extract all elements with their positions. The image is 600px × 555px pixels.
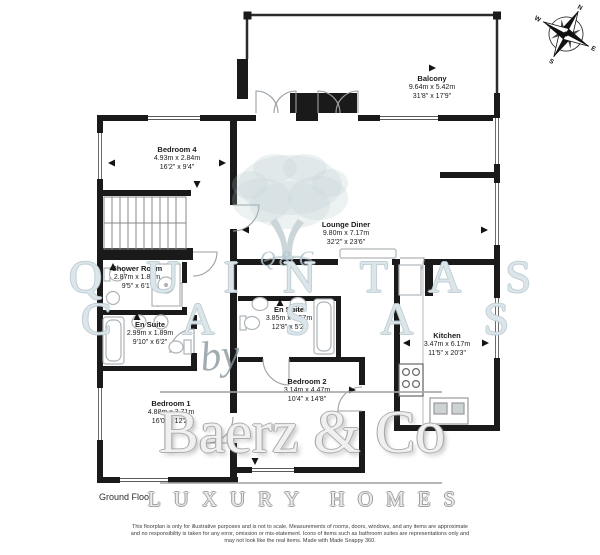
room-name: Lounge Diner: [322, 220, 370, 229]
room-dim-metric: 9.64m x 5.42m: [409, 83, 455, 92]
room-label-shower-room: Shower Room 2.87m x 1.86m 9'5" x 6'1": [112, 264, 162, 291]
compass-rose-icon: N E S W: [519, 0, 600, 81]
room-label-bedroom-4: Bedroom 4 4.93m x 2.84m 16'2" x 9'4": [154, 145, 200, 172]
compass-n-label: N: [576, 4, 584, 13]
room-name: Kitchen: [424, 331, 470, 340]
fridge-icon: [399, 265, 421, 295]
disclaimer-text: This floorplan is only for illustrative …: [0, 524, 600, 545]
room-dim-imperial: 10'4" x 14'8": [284, 395, 330, 404]
room-dim-imperial: 12'8" x 5'2": [266, 323, 312, 332]
room-dim-imperial: 32'2" x 23'6": [322, 238, 370, 247]
room-label-lounge-diner: Lounge Diner 9.80m x 7.17m 32'2" x 23'6": [322, 220, 370, 247]
room-label-kitchen: Kitchen 3.47m x 6.17m 11'5" x 20'3": [424, 331, 470, 358]
sink-icon: [107, 292, 120, 305]
room-name: Bedroom 1: [148, 399, 194, 408]
compass-w-label: W: [533, 15, 542, 24]
room-dim-metric: 2.87m x 1.86m: [112, 273, 162, 282]
room-dim-metric: 3.47m x 6.17m: [424, 340, 470, 349]
room-dim-imperial: 9'5" x 6'1": [112, 282, 162, 291]
room-label-en-suite-2: En Suite 3.85m x 1.57m 12'8" x 5'2": [266, 305, 312, 332]
disclaimer-line-3: may not look like the real items. Made w…: [0, 538, 600, 545]
room-label-balcony: Balcony 9.64m x 5.42m 31'8" x 17'9": [409, 74, 455, 101]
compass-s-label: S: [548, 58, 556, 67]
room-label-bedroom-1: Bedroom 1 4.88m x 3.71m 16'0" x 12'2": [148, 399, 194, 426]
balcony-railing: [244, 12, 502, 94]
floorplan-page: N E S W Balcony 9.64m x 5.42m 31'8" x 17…: [0, 0, 600, 555]
room-name: Bedroom 2: [284, 377, 330, 386]
room-dim-metric: 4.88m x 3.71m: [148, 408, 194, 417]
kitchen-sink-icon: [430, 398, 468, 424]
room-dim-metric: 2.99m x 1.89m: [127, 329, 173, 338]
sideboard-icon: [340, 249, 396, 258]
bathtub-icon: [314, 299, 334, 354]
room-dim-metric: 4.93m x 2.84m: [154, 154, 200, 163]
room-name: Shower Room: [112, 264, 162, 273]
room-dim-metric: 9.80m x 7.17m: [322, 229, 370, 238]
room-dim-imperial: 31'8" x 17'9": [409, 92, 455, 101]
disclaimer-line-2: and no responsibility is taken for any e…: [0, 531, 600, 538]
room-name: Bedroom 4: [154, 145, 200, 154]
room-name: En Suite: [127, 320, 173, 329]
room-label-en-suite-1: En Suite 2.99m x 1.89m 9'10" x 6'2": [127, 320, 173, 347]
room-dim-imperial: 11'5" x 20'3": [424, 349, 470, 358]
room-dim-imperial: 9'10" x 6'2": [127, 338, 173, 347]
room-name: En Suite: [266, 305, 312, 314]
room-dim-imperial: 16'2" x 9'4": [154, 163, 200, 172]
compass-e-label: E: [590, 45, 598, 54]
room-dim-metric: 3.85m x 1.57m: [266, 314, 312, 323]
room-label-bedroom-2: Bedroom 2 3.14m x 4.47m 10'4" x 14'8": [284, 377, 330, 404]
floorplan-drawing: N E S W: [0, 0, 600, 555]
room-dim-metric: 3.14m x 4.47m: [284, 386, 330, 395]
room-dim-imperial: 16'0" x 12'2": [148, 417, 194, 426]
room-name: Balcony: [409, 74, 455, 83]
toilet-icon: [240, 316, 260, 330]
stairs-icon: [104, 197, 186, 249]
disclaimer-line-1: This floorplan is only for illustrative …: [0, 524, 600, 531]
bathtub-icon: [103, 317, 124, 364]
floor-label: Ground Floor: [99, 492, 152, 502]
stove-icon: [399, 364, 423, 396]
